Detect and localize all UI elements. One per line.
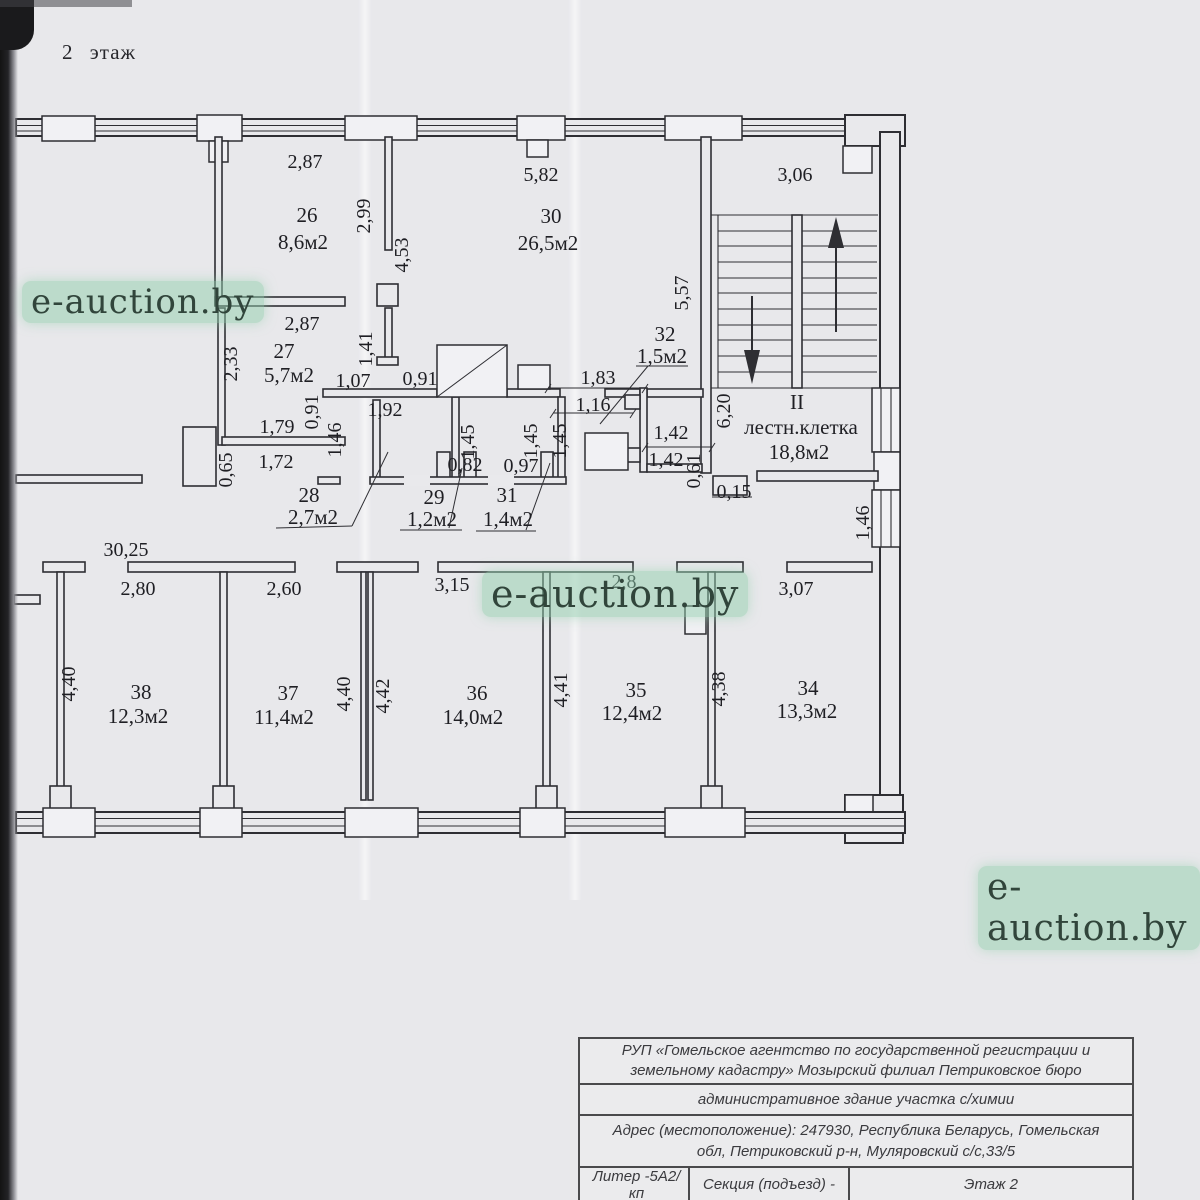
stairwell-left-wall: [701, 137, 711, 473]
room32-top-wall: [647, 389, 703, 397]
dim-label: 6,20: [713, 394, 735, 429]
building-type-row: административное здание участка с/химии: [580, 1085, 1132, 1116]
column-stub: [527, 140, 548, 157]
dim-label: 4,40: [58, 667, 80, 702]
room-number: 27: [274, 339, 295, 363]
door-post: [625, 395, 640, 409]
address-line-1: Адрес (местоположение): 247930, Республи…: [613, 1120, 1100, 1141]
room-number: 30: [541, 204, 562, 228]
equipment-box: [585, 433, 628, 470]
room-area: 26,5м2: [518, 231, 579, 255]
stairwell-roman-numeral: II: [790, 390, 804, 414]
dim-label: 5,57: [671, 276, 693, 311]
scan-edge-artifact: [0, 0, 18, 1200]
room-area: 1,2м2: [407, 507, 457, 531]
agency-line-1: РУП «Гомельское агентство по государстве…: [622, 1041, 1090, 1061]
dim-label: 1,41: [355, 332, 377, 367]
dim-label: 2,87: [288, 151, 323, 173]
wall-pier: [200, 808, 242, 837]
dim-label: 4,40: [333, 677, 355, 712]
dim-label: 4,42: [372, 679, 394, 714]
dim-label: 0,91: [301, 395, 323, 430]
window: [872, 388, 900, 452]
dim-label: 30,25: [104, 539, 149, 561]
room-number: 38: [131, 680, 152, 704]
room-number: 31: [497, 483, 518, 507]
dim-label: 1,79: [260, 416, 295, 438]
dim-label: 2,87: [285, 313, 320, 335]
leader-room28: [352, 452, 388, 526]
duct-box: [518, 365, 550, 389]
address-row: Адрес (местоположение): 247930, Республи…: [580, 1116, 1132, 1168]
dim-label: 2,33: [220, 347, 242, 382]
room26-left-wall: [215, 137, 222, 305]
scanned-floor-plan-page: 2 этаж: [0, 0, 1200, 1200]
corridor-bottom-wall: [43, 562, 872, 572]
room-number: 32: [655, 322, 676, 346]
room-area: 1,4м2: [483, 507, 533, 531]
right-outer-wall: [845, 132, 903, 843]
window: [345, 808, 418, 837]
dim-label: 3,15: [435, 574, 470, 596]
dim-label: 4,38: [708, 672, 730, 707]
room-area: 13,3м2: [777, 699, 838, 723]
dim-label: 2,80: [121, 578, 156, 600]
dim-label: 4,53: [391, 238, 413, 273]
address-line-2: обл, Петриковский р-н, Муляровский с/с,3…: [697, 1141, 1015, 1162]
room-area: 5,7м2: [264, 363, 314, 387]
room-number: 34: [798, 676, 820, 700]
wall-pier: [520, 808, 565, 837]
e-auction-watermark: e-auction.by: [978, 866, 1200, 950]
room-area: 2,7м2: [288, 505, 338, 529]
room-number: 28: [299, 483, 320, 507]
small-rooms-bottom-wall: [370, 477, 566, 484]
dim-label: 1,07: [336, 370, 371, 392]
floor-cell: Этаж 2: [850, 1168, 1132, 1200]
dim-label: 1,46: [852, 506, 874, 541]
window: [43, 808, 95, 837]
wall-end-cap: [377, 357, 398, 365]
corner-notch: [843, 146, 872, 173]
dim-label: 2,99: [353, 199, 375, 234]
agency-line-2: земельному кадастру» Мозырский филиал Пе…: [630, 1061, 1081, 1081]
room-number: 26: [297, 203, 318, 227]
dim-label: 0,65: [215, 453, 237, 488]
room-number: 36: [467, 681, 488, 705]
liter-section-floor-row: Литер -5А2/кп Секция (подъезд) - Этаж 2: [580, 1168, 1132, 1200]
room32-left-wall: [640, 388, 647, 472]
room26-room30-wall: [385, 137, 392, 250]
stair-stringer: [792, 215, 802, 388]
section-cell: Секция (подъезд) -: [690, 1168, 850, 1200]
room-area: 11,4м2: [254, 705, 314, 729]
closet-box: [183, 427, 216, 486]
stairwell-area: 18,8м2: [769, 440, 830, 464]
dim-label: 3,06: [778, 164, 813, 186]
scan-corner-artifact: [0, 0, 34, 50]
e-auction-watermark: e-auction.by: [482, 571, 748, 617]
window: [665, 808, 745, 837]
top-outer-wall: [16, 115, 905, 173]
dim-label: 1,45: [520, 424, 542, 459]
dim-label: 1,46: [324, 423, 346, 458]
room-area: 1,5м2: [637, 344, 687, 368]
room-number: 29: [424, 485, 445, 509]
corridor-left-wall: [16, 475, 142, 483]
dim-label: 1,72: [259, 451, 294, 473]
dim-label: 1,42: [649, 449, 684, 471]
room-area: 14,0м2: [443, 705, 504, 729]
room-number: 37: [278, 681, 299, 705]
window: [872, 490, 900, 547]
room-area: 12,4м2: [602, 701, 663, 725]
wall-pier: [517, 116, 565, 140]
dim-label: 4,41: [550, 673, 572, 708]
dim-label: 1,83: [581, 367, 616, 389]
dim-label: 2,60: [267, 578, 302, 600]
dim-label: 0,82: [448, 454, 483, 476]
stairs-up-arrow-icon: [828, 217, 844, 332]
dim-label: 1,92: [368, 399, 403, 421]
dim-label: 3,07: [779, 578, 814, 600]
dim-label: 1,45: [549, 424, 571, 459]
wall-end-cap: [377, 284, 398, 306]
e-auction-watermark: e-auction.by: [22, 281, 264, 323]
room-area: 12,3м2: [108, 704, 169, 728]
dim-label: 0,61: [683, 454, 705, 489]
stairwell-bottom-wall: [757, 471, 878, 481]
window: [42, 116, 95, 141]
room-number: 35: [626, 678, 647, 702]
title-block-table: РУП «Гомельское агентство по государстве…: [578, 1037, 1134, 1200]
dim-label: 1,16: [576, 394, 611, 416]
window: [345, 116, 417, 140]
room27-right-wall: [385, 308, 392, 362]
corridor-top-wall: [507, 389, 560, 397]
room-area: 8,6м2: [278, 230, 328, 254]
dim-label: 5,82: [524, 164, 559, 186]
scan-top-artifact: [0, 0, 132, 7]
dim-label: 0,15: [717, 481, 752, 503]
dim-label: 1,42: [654, 422, 689, 444]
agency-row: РУП «Гомельское агентство по государстве…: [580, 1039, 1132, 1085]
dim-label: 0,97: [504, 455, 539, 477]
stairwell-name: лестн.клетка: [744, 415, 858, 439]
bottom-outer-wall: [16, 808, 905, 837]
liter-cell: Литер -5А2/кп: [580, 1168, 690, 1200]
dim-label: 0,91: [403, 368, 438, 390]
wall-end-cap: [318, 477, 340, 484]
